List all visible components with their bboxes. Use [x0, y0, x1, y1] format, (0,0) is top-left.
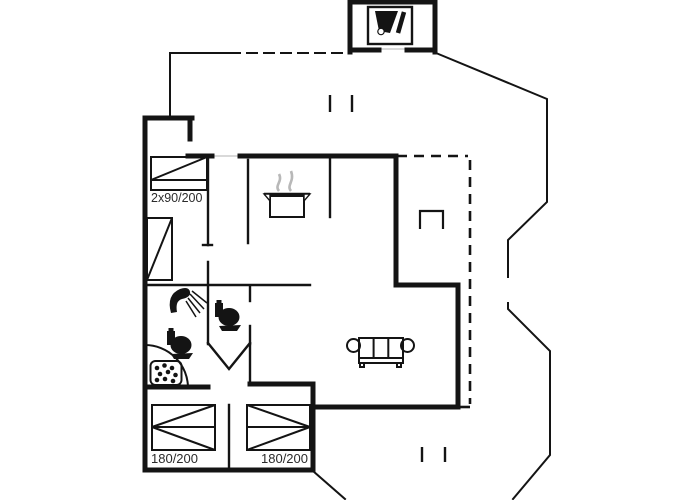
- double-bed-icon: [247, 405, 310, 450]
- shower-icon: [170, 288, 207, 317]
- wardrobe-icon: [147, 218, 172, 280]
- floorplan-page: 2x90/200 180/200 180/200: [0, 0, 700, 500]
- door-threshold-lines: [213, 49, 407, 156]
- house-outer-walls: [145, 118, 458, 470]
- roof-overhang-dashed-line: [397, 156, 472, 407]
- site-boundary-outline: [170, 53, 550, 499]
- bed-size-label-bedroom3: 180/200: [246, 452, 308, 466]
- bed-size-label-bedroom2: 180/200: [151, 452, 198, 466]
- terrace-table-icon: [420, 211, 443, 229]
- grill-stove-icon: [368, 7, 412, 44]
- floorplan-drawing: [0, 0, 700, 500]
- double-bed-icon: [152, 405, 215, 450]
- sofa-icon: [347, 338, 414, 367]
- cooking-pot-icon: [264, 171, 310, 217]
- toilet-icon: [215, 300, 241, 331]
- bed-size-label-bedroom1: 2x90/200: [151, 191, 202, 205]
- double-bed-icon: [151, 157, 207, 190]
